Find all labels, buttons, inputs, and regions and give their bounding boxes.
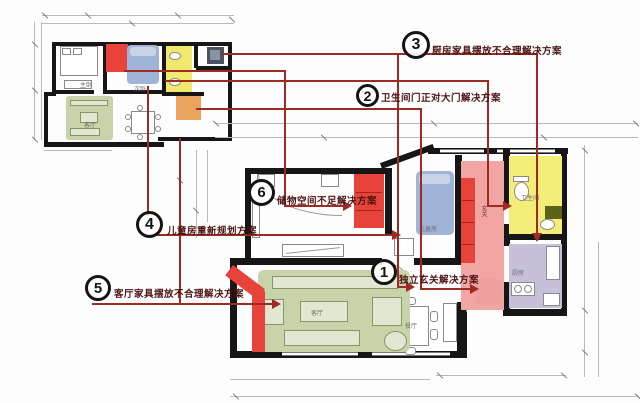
wall-segment <box>44 142 164 147</box>
fridge <box>543 293 560 306</box>
chair <box>430 311 438 322</box>
room-label-living-small: 客厅 <box>84 120 96 129</box>
wall-segment <box>44 92 48 147</box>
burner <box>514 285 522 293</box>
chair <box>430 329 438 340</box>
annotation-number: 4 <box>145 216 154 234</box>
chair <box>155 126 161 132</box>
wall-segment <box>228 44 232 141</box>
annotation-number: 5 <box>94 280 102 297</box>
highlight-feature-wall-vertical <box>252 291 265 352</box>
kitchen-counter <box>546 246 560 280</box>
annotation-number: 6 <box>257 184 265 201</box>
entry-mat <box>475 278 502 305</box>
annotation-label-2: 卫生间门正对大门解决方案 <box>381 90 501 104</box>
dining-table-small-plan <box>131 111 155 134</box>
highlight-closet-red <box>106 44 128 72</box>
pillow <box>419 174 450 184</box>
pillow <box>130 47 156 56</box>
chair <box>125 126 131 132</box>
dimension-line <box>215 137 638 138</box>
wall-segment <box>245 168 251 264</box>
plant <box>384 331 407 351</box>
annotation-number: 3 <box>412 36 421 54</box>
connector-line-1 <box>420 288 472 290</box>
arrowhead-bathroom <box>503 201 512 211</box>
wardrobe-divider <box>356 210 382 211</box>
window <box>282 352 358 356</box>
connector-line-1 <box>420 108 422 290</box>
annotation-circle-4: 4 <box>136 211 163 238</box>
annotation-label-4: 儿童房重新规划方案 <box>167 223 257 237</box>
cabinet-divider <box>462 222 474 223</box>
cabinet-divider <box>462 244 474 245</box>
highlight-shoe-cabinet-red <box>461 178 475 263</box>
connector-line-6 <box>124 70 286 72</box>
washer-block-olive <box>545 206 562 219</box>
sofa-back <box>70 100 108 106</box>
wall-segment <box>503 309 567 316</box>
annotation-circle-6: 6 <box>248 179 275 206</box>
annotation-circle-3: 3 <box>402 31 430 59</box>
connector-line-5 <box>92 303 274 305</box>
dimension-tick <box>32 136 38 142</box>
dimension-line <box>436 375 566 376</box>
dimension-tick <box>32 41 38 47</box>
dimension-line <box>207 150 208 222</box>
dimension-line <box>42 23 234 24</box>
chair <box>137 134 143 140</box>
chair <box>155 114 161 120</box>
connector-line-6 <box>284 70 286 207</box>
annotation-label-6: 储物空间不足解决方案 <box>277 193 377 207</box>
coffee-table <box>300 301 348 322</box>
pillow <box>73 48 82 55</box>
wall-segment <box>385 168 392 234</box>
dimension-line <box>41 22 42 140</box>
room-label-master: 主卧 <box>80 80 92 89</box>
room-label-second: 次卧 <box>134 84 146 93</box>
kitchen-sink <box>210 50 220 60</box>
annotation-number: 2 <box>364 88 372 104</box>
sink <box>540 219 555 230</box>
dimension-line <box>34 22 35 140</box>
annotation-circle-1: 1 <box>371 259 397 285</box>
dimension-tick <box>32 87 38 93</box>
dimension-tick <box>582 147 588 153</box>
dimension-tick <box>582 307 588 313</box>
arrowhead-kitchen <box>532 233 542 242</box>
connector-line-5 <box>179 138 181 305</box>
dimension-tick <box>229 16 235 22</box>
floorplan-diagram: 主卧 次卧 客厅 <box>0 0 640 403</box>
annotation-circle-2: 2 <box>356 84 379 107</box>
connector-line-4 <box>147 86 149 216</box>
sideboard <box>443 303 457 342</box>
dimension-line <box>230 379 430 380</box>
room-label-kitchen: 厨房 <box>512 268 524 277</box>
connector-line-2 <box>487 205 504 207</box>
bathroom-fixture <box>169 52 181 60</box>
dimension-line <box>42 15 234 16</box>
wall-chamfer <box>380 144 435 169</box>
dimension-tick <box>582 349 588 355</box>
dimension-line <box>230 396 638 397</box>
dimension-line <box>44 150 112 151</box>
connector-line-3 <box>536 53 538 234</box>
chair <box>125 114 131 120</box>
pillow <box>62 48 71 55</box>
annotation-number: 1 <box>380 264 388 281</box>
wall-segment <box>52 90 94 94</box>
annotation-label-5: 客厅家具摆放不合理解决方案 <box>114 286 244 300</box>
room-label-dining: 餐厅 <box>405 321 417 330</box>
annotation-label-1: 独立玄关解决方案 <box>399 272 479 286</box>
chair <box>137 105 143 111</box>
armchair <box>372 297 402 326</box>
connector-line-2 <box>165 80 489 82</box>
wall-segment <box>52 42 56 94</box>
arrowhead-children <box>392 230 401 240</box>
room-label-living: 客厅 <box>311 308 323 317</box>
arrowhead-living <box>272 299 281 309</box>
sofa-seat <box>70 128 100 136</box>
wall-segment <box>194 42 198 68</box>
window <box>440 149 484 153</box>
annotation-circle-5: 5 <box>85 275 111 301</box>
connector-line-1 <box>196 108 422 110</box>
dimension-line <box>584 145 585 377</box>
sofa-seat <box>284 330 360 346</box>
dimension-line <box>598 242 599 377</box>
annotation-label-3: 厨房家具摆放不合理解决方案 <box>432 43 562 57</box>
cabinet-divider <box>462 200 474 201</box>
burner <box>524 285 532 293</box>
dimension-line <box>215 123 638 124</box>
wall-segment <box>230 258 382 265</box>
